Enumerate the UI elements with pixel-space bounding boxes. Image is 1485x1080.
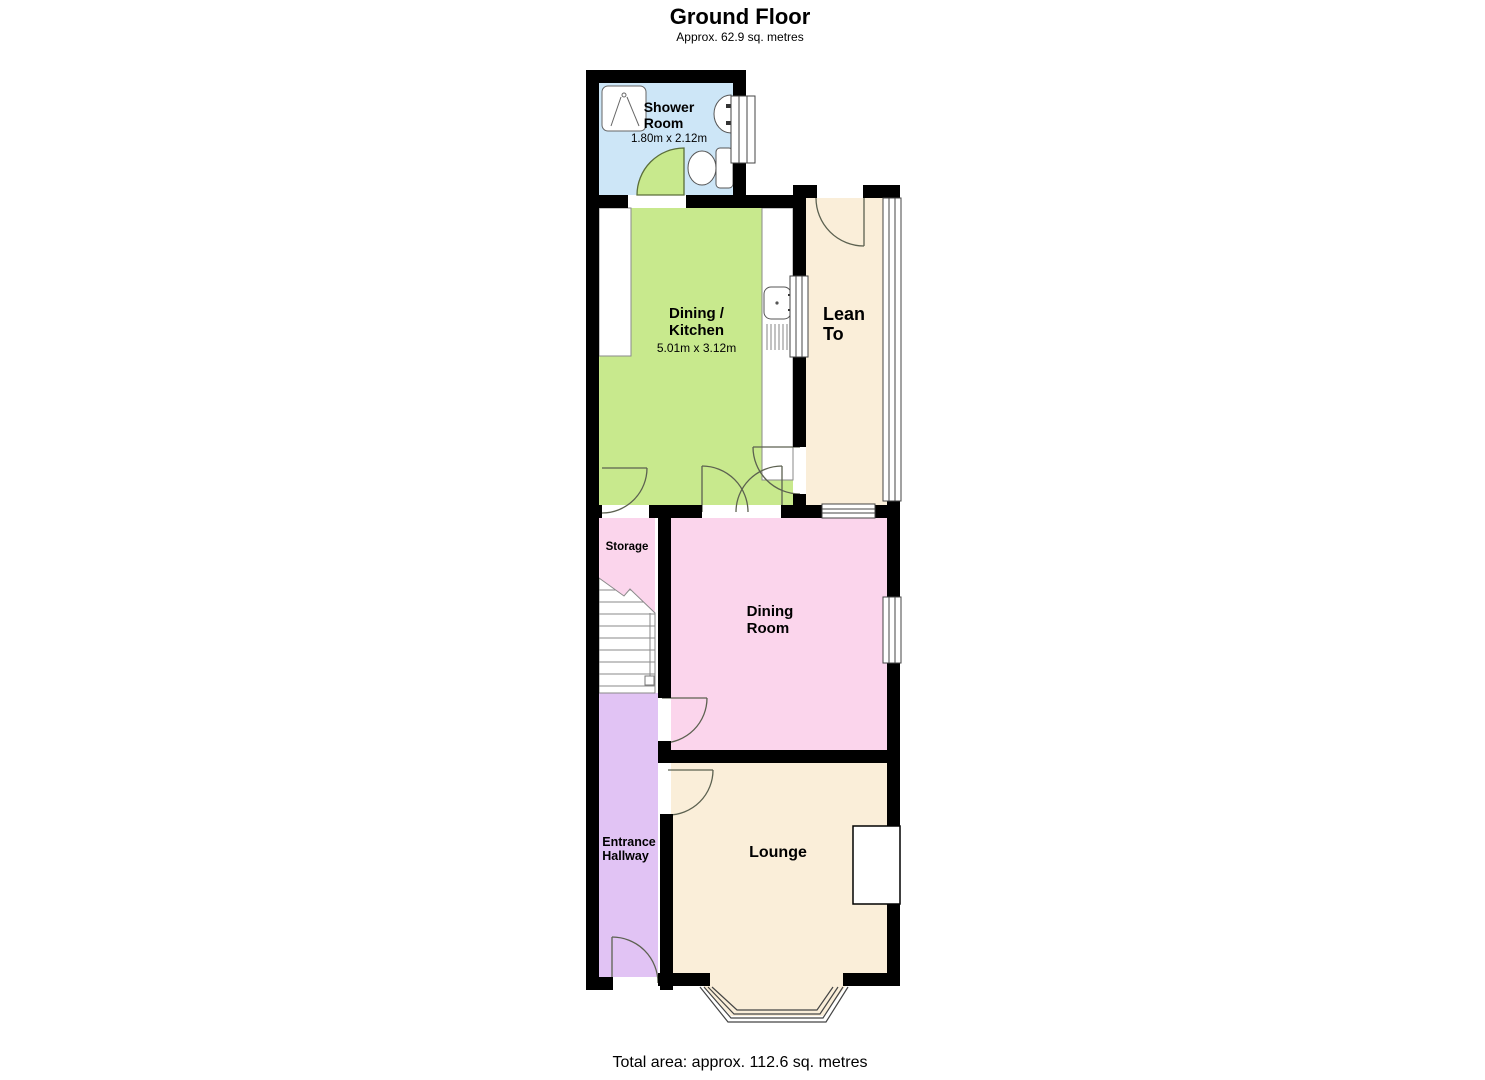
total-area-text: Total area: approx. 112.6 sq. metres (440, 1054, 1040, 1072)
floorplan-drawing (0, 0, 1485, 1080)
lean-to-side-window (883, 198, 901, 501)
kitchen-window (790, 276, 808, 357)
dining-room-window (883, 597, 901, 663)
toilet-icon (688, 148, 733, 188)
lean-to-rear-window (822, 504, 875, 518)
page-title: Ground Floor (440, 4, 1040, 30)
lounge-bay-opening-floor (710, 973, 843, 987)
page-subtitle: Approx. 62.9 sq. metres (440, 30, 1040, 44)
lean-to-floor (806, 198, 887, 505)
entrance-hallway-floor (599, 693, 658, 977)
lounge-fireplace (853, 826, 900, 904)
bay-window-floor (703, 986, 846, 1016)
shower-room-window (731, 96, 755, 163)
shower-tray-icon (602, 86, 646, 131)
kitchen-counter-left (599, 208, 631, 356)
floorplan-page: Ground Floor Approx. 62.9 sq. metres Sho… (0, 0, 1485, 1080)
room-floors (599, 83, 887, 1016)
